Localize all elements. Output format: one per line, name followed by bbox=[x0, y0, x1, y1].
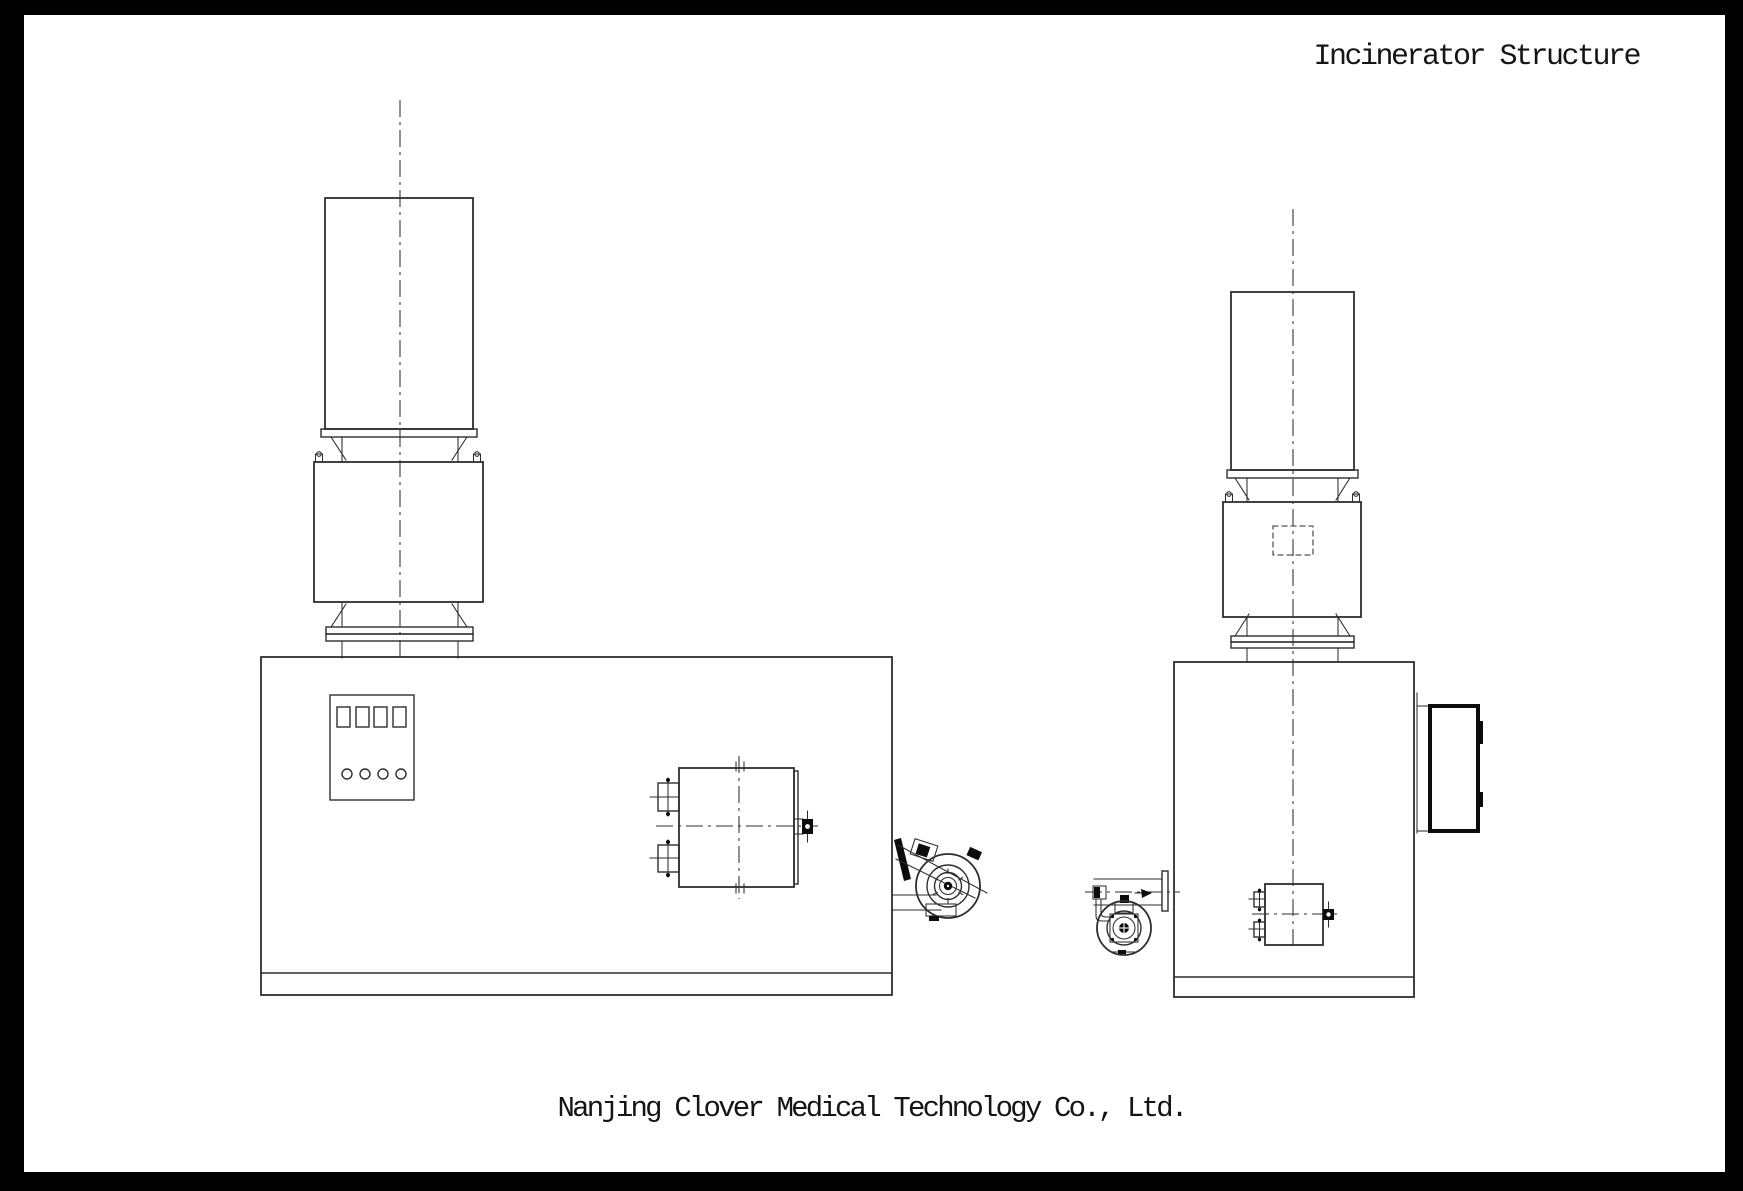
burner-mount-plate bbox=[794, 771, 798, 884]
control-panel-box bbox=[330, 695, 414, 800]
panel-knob bbox=[396, 769, 406, 779]
door-hinge bbox=[1478, 721, 1483, 744]
indicator-window bbox=[356, 707, 369, 727]
lower-transition-neck bbox=[331, 602, 467, 627]
outlet-flange-pair bbox=[326, 627, 473, 641]
flange-bolt-left bbox=[316, 452, 323, 462]
fuel-pipe-fitting-upper bbox=[1249, 889, 1265, 911]
side-view bbox=[1085, 209, 1483, 997]
panel-knob bbox=[360, 769, 370, 779]
indicator-window bbox=[374, 707, 387, 727]
flange-bolt-right bbox=[1353, 492, 1360, 502]
elbow-pipe bbox=[1096, 899, 1109, 921]
draft-fan bbox=[1085, 871, 1180, 955]
control-panel bbox=[330, 695, 414, 800]
fuel-pipe-fitting-lower bbox=[1249, 919, 1265, 941]
panel-knob bbox=[342, 769, 352, 779]
flange-bolt-right bbox=[474, 452, 481, 462]
drawing-title: Incinerator Structure bbox=[1313, 40, 1639, 74]
ignition-fitting bbox=[1323, 902, 1334, 927]
burner-assembly bbox=[650, 756, 818, 899]
front-view bbox=[261, 100, 987, 995]
flange-bolt-left bbox=[1226, 492, 1233, 502]
secondary-chamber bbox=[1223, 502, 1361, 617]
company-name: Nanjing Clover Medical Technology Co., L… bbox=[0, 1092, 1743, 1125]
fuel-pipe-fitting-upper bbox=[650, 778, 679, 816]
upper-transition-neck bbox=[331, 437, 467, 462]
chimney-stack bbox=[325, 198, 473, 429]
incinerator-technical-drawing bbox=[0, 0, 1743, 1191]
secondary-chamber bbox=[314, 462, 483, 602]
door-frame bbox=[1430, 706, 1478, 831]
indicator-window bbox=[393, 707, 406, 727]
drawing-sheet: Incinerator Structure Nanjing Clover Med… bbox=[0, 0, 1743, 1191]
flow-arrow bbox=[1141, 889, 1152, 898]
door-hinge bbox=[1478, 792, 1483, 807]
burner-assembly bbox=[1249, 884, 1340, 945]
fuel-pipe-fitting-lower bbox=[650, 840, 679, 877]
draft-fan bbox=[892, 838, 987, 921]
stack-flange bbox=[321, 429, 477, 437]
access-door bbox=[1417, 693, 1483, 833]
indicator-window bbox=[337, 707, 350, 727]
main-chamber bbox=[1174, 662, 1414, 997]
ignition-fitting bbox=[794, 811, 813, 842]
pipe-flange bbox=[1162, 871, 1168, 911]
burner-housing bbox=[679, 768, 794, 887]
panel-knob bbox=[378, 769, 388, 779]
